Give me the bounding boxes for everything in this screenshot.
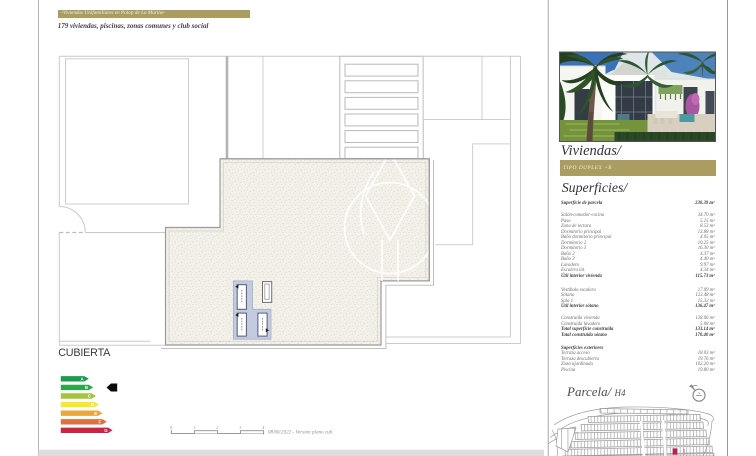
svg-text:4: 4	[262, 425, 264, 430]
svg-text:2: 2	[216, 425, 218, 430]
svg-text:3: 3	[239, 425, 241, 430]
svg-text:08/06/2022 - Versión plano cub: 08/06/2022 - Versión plano cub.	[268, 429, 334, 435]
svg-text:0: 0	[170, 425, 173, 430]
svg-text:E: E	[94, 411, 97, 416]
svg-text:1: 1	[193, 425, 195, 430]
svg-text:F: F	[99, 419, 102, 424]
svg-text:G: G	[104, 428, 108, 433]
svg-text:D: D	[91, 402, 94, 407]
svg-text:B: B	[85, 385, 88, 390]
